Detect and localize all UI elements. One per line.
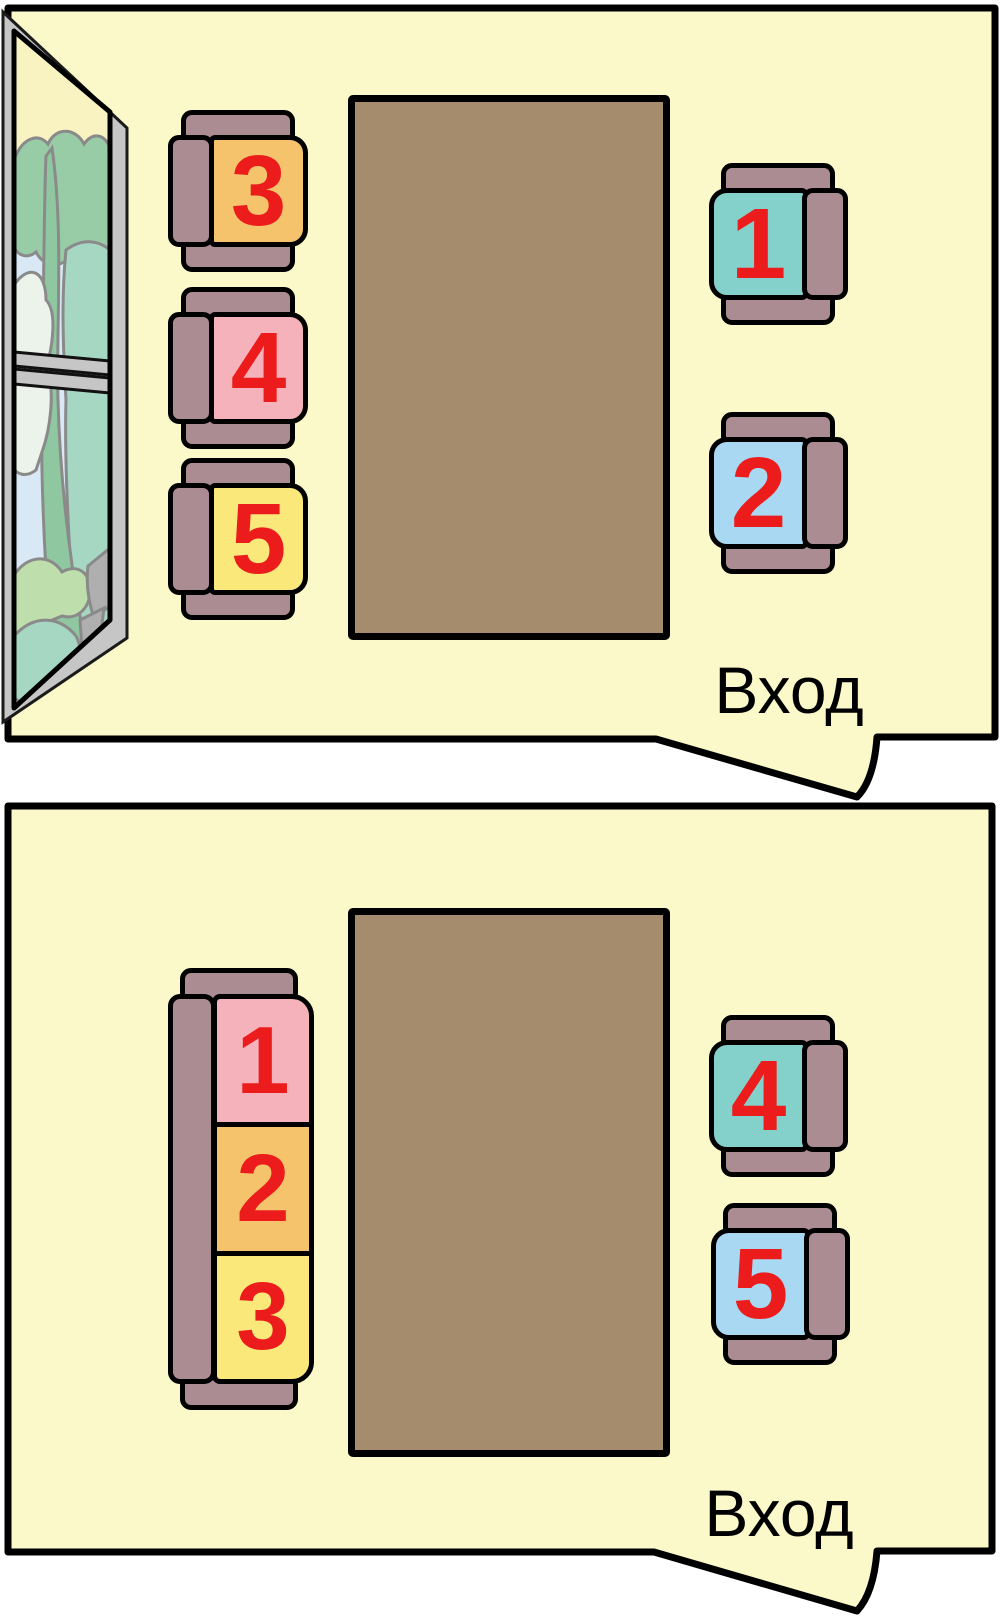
seat-number: 5 — [231, 489, 287, 589]
armchair-3: 3 — [168, 110, 308, 272]
chair-seat: 4 — [709, 1040, 808, 1152]
chair-back — [168, 135, 214, 247]
chair-back — [168, 483, 214, 595]
chair-seat: 5 — [711, 1228, 810, 1340]
seat-number: 2 — [731, 443, 787, 543]
seat-number: 3 — [236, 1269, 289, 1365]
armchair-5: 5 — [168, 458, 308, 620]
armchair-1: 1 — [708, 163, 848, 325]
seat-number: 4 — [731, 1046, 787, 1146]
sofa-cushion: 1 — [217, 999, 309, 1122]
chair-seat: 5 — [209, 483, 308, 595]
sofa-cushion: 3 — [217, 1251, 309, 1379]
chair-back — [802, 1040, 848, 1152]
armchair-5: 5 — [710, 1203, 850, 1365]
chair-back — [802, 188, 848, 300]
chair-back — [804, 1228, 850, 1340]
seat-number: 3 — [231, 141, 287, 241]
sofa: 1 2 3 — [168, 968, 314, 1410]
table — [348, 908, 670, 1457]
window-landscape — [14, 31, 110, 704]
chair-seat: 4 — [209, 312, 308, 424]
sofa-cushions: 1 2 3 — [212, 994, 314, 1384]
armchair-2: 2 — [708, 412, 848, 574]
entrance-label: Вход — [660, 657, 918, 723]
chair-seat: 2 — [709, 437, 808, 549]
chair-seat: 1 — [709, 188, 808, 300]
chair-back — [802, 437, 848, 549]
armchair-4: 4 — [708, 1015, 848, 1177]
floor-plan-diagram: 3 4 5 1 2 Вход — [0, 0, 1000, 1620]
seat-number: 2 — [236, 1141, 289, 1237]
chair-back — [168, 312, 214, 424]
table — [348, 95, 670, 640]
seat-number: 4 — [231, 318, 287, 418]
seat-number: 1 — [731, 194, 787, 294]
sofa-cushion: 2 — [217, 1122, 309, 1250]
seat-number: 1 — [236, 1013, 289, 1109]
window — [3, 12, 127, 722]
entrance-label: Вход — [650, 1480, 908, 1546]
chair-seat: 3 — [209, 135, 308, 247]
sofa-back — [168, 994, 216, 1384]
seat-number: 5 — [733, 1234, 789, 1334]
armchair-4: 4 — [168, 287, 308, 449]
